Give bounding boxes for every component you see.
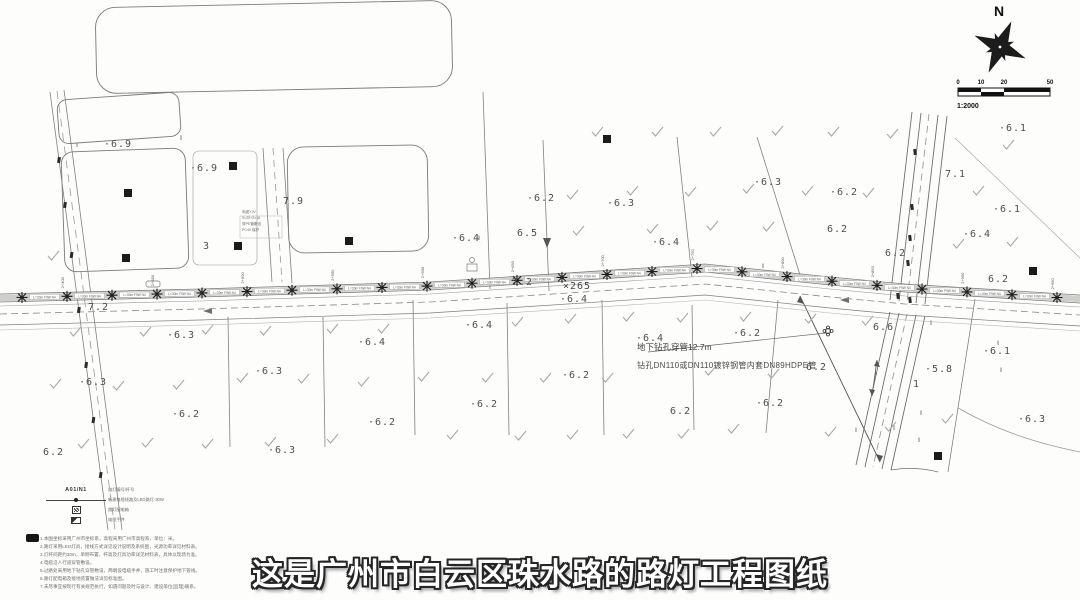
bore-pit-symbol bbox=[823, 326, 833, 336]
ground-mark-icon bbox=[740, 312, 751, 321]
arrowhead bbox=[876, 454, 883, 462]
notes-marker bbox=[26, 534, 39, 542]
parcel-block bbox=[287, 145, 429, 253]
scale-ticks: 0102050 bbox=[956, 80, 1054, 86]
ground-mark-icon bbox=[707, 221, 718, 230]
elevation-label: ·6.2 bbox=[830, 187, 858, 198]
boundary-lines bbox=[50, 90, 1080, 530]
ground-mark-icon bbox=[540, 373, 551, 382]
ground-mark-icon bbox=[48, 251, 59, 260]
elevation-label: ·6.2 bbox=[368, 417, 396, 428]
street-lamp-icon bbox=[152, 289, 163, 300]
ground-mark-icon bbox=[802, 186, 813, 195]
ground-mark-icon bbox=[623, 312, 634, 321]
ground-mark-icon bbox=[515, 431, 526, 440]
ground-mark-icon bbox=[710, 127, 721, 136]
legend: A01/N1路灯编号/杆号新建电缆线路及LED路灯·30W路灯配电箱电缆手井 bbox=[44, 485, 244, 525]
ground-mark-icon bbox=[685, 187, 696, 196]
parcel-block bbox=[57, 92, 182, 144]
legend-row: 路灯配电箱 bbox=[44, 505, 244, 515]
elevation-label: ·6.9 bbox=[104, 139, 132, 150]
scale-ratio: 1:2000 bbox=[957, 103, 979, 110]
elevation-label: 6.5 bbox=[517, 228, 538, 239]
elevation-label: ·6.3 bbox=[607, 198, 635, 209]
ground-mark-icon bbox=[862, 316, 873, 325]
legend-row: 新建电缆线路及LED路灯·30W bbox=[44, 495, 244, 505]
elevation-label: ·6.1 bbox=[999, 123, 1027, 134]
pole-mark bbox=[63, 202, 67, 208]
arrowhead bbox=[797, 296, 804, 304]
lamp-label-text: L=30m F9W N4 bbox=[33, 295, 56, 299]
elevation-label: 6.2 bbox=[670, 406, 691, 417]
lamp-label-text: L=30m F9W N4 bbox=[213, 291, 236, 295]
double-tick: ‖ bbox=[478, 236, 480, 242]
ground-mark-icon bbox=[418, 372, 429, 381]
elevation-label: 6.2 bbox=[885, 248, 906, 259]
lamp-label-text: L=30m F9W N4 bbox=[78, 294, 101, 298]
station-label: 2+850 bbox=[870, 265, 875, 277]
station-marker-label: ×265 bbox=[563, 281, 591, 292]
lamp-code-text: A01/N1 bbox=[65, 487, 87, 493]
elevation-label: 7.2 bbox=[88, 302, 109, 313]
boundary-line bbox=[955, 138, 1080, 258]
boundary-line bbox=[602, 300, 604, 435]
elevation-label: ·6.4 bbox=[452, 233, 480, 244]
ground-mark-icon bbox=[763, 222, 774, 231]
lamp-label-text: L=30m F9W N4 bbox=[933, 289, 956, 293]
building-square bbox=[345, 237, 353, 245]
station-label: 2+650 bbox=[510, 260, 515, 272]
pole-mark bbox=[57, 157, 61, 163]
pole-mark bbox=[92, 417, 96, 423]
street-lamp-icon bbox=[827, 276, 838, 287]
arrowhead bbox=[869, 389, 875, 396]
station-label: 2+800 bbox=[780, 257, 785, 269]
street-lamp-icon bbox=[467, 278, 478, 289]
elevation-label: ·6.2 bbox=[172, 409, 200, 420]
main-road bbox=[0, 264, 1080, 331]
pole-mark bbox=[70, 252, 74, 258]
ground-mark-icon bbox=[627, 186, 638, 195]
elevation-label: 6.2 bbox=[43, 447, 64, 458]
ground-mark-icon bbox=[768, 369, 779, 378]
pole-mark bbox=[908, 235, 912, 241]
legend-label: 路灯配电箱 bbox=[108, 507, 129, 513]
elevation-label: ·6.3 bbox=[255, 366, 283, 377]
elevation-label: ·6.2 bbox=[470, 399, 498, 410]
road-line bbox=[0, 295, 1080, 326]
north-label: N bbox=[994, 3, 1004, 19]
cable-route-line bbox=[800, 296, 880, 462]
elevation-label: ·6.3 bbox=[268, 445, 296, 456]
ground-mark-icon bbox=[863, 188, 874, 197]
pole-mark bbox=[908, 297, 912, 303]
parcel-block bbox=[95, 0, 453, 93]
pole-mark bbox=[910, 204, 914, 210]
station-label: 2+600 bbox=[420, 266, 425, 278]
scale-tick-label: 50 bbox=[1047, 80, 1054, 86]
street-lamp-icon bbox=[1052, 292, 1063, 303]
lamp-label-text: L=30m F9W N4 bbox=[168, 292, 191, 296]
double-tick: ‖ bbox=[918, 438, 920, 444]
elevation-label: ·6.4 bbox=[358, 337, 386, 348]
street-lamp-icon bbox=[377, 282, 388, 293]
cable-line-icon bbox=[46, 500, 106, 501]
station-label: 2+950 bbox=[1050, 278, 1055, 290]
street-lamp-icon bbox=[107, 290, 118, 301]
lamp-label-text: L=30m F9W N4 bbox=[618, 272, 641, 276]
boundary-line bbox=[543, 140, 549, 291]
double-tick: ‖ bbox=[855, 428, 857, 434]
ground-mark-icon bbox=[327, 324, 338, 333]
double-tick: ‖ bbox=[180, 136, 182, 142]
lamp-label-text: L=30m F9W N4 bbox=[393, 285, 416, 289]
mid-road-centerline bbox=[273, 148, 282, 282]
lamp-label-text: L=30m F9W N4 bbox=[573, 275, 596, 279]
scale-bar: 0102050 1:2000 bbox=[956, 80, 1054, 110]
legend-label: 路灯编号/杆号 bbox=[108, 487, 134, 493]
building-square bbox=[234, 242, 242, 250]
elevation-label: ·6.2 bbox=[733, 328, 761, 339]
elevation-label: ·6.4 bbox=[652, 237, 680, 248]
ground-mark-icon bbox=[743, 184, 754, 193]
ground-mark-icon bbox=[647, 224, 658, 233]
note-line: 1.本图坐标采用广州市坐标系，高程采用广州市高程系，单位：米。 bbox=[40, 535, 320, 543]
double-tick: ‖ bbox=[1000, 368, 1002, 374]
elevation-label: 3 bbox=[203, 241, 210, 252]
ground-mark-icon bbox=[512, 317, 523, 326]
ground-mark-icon bbox=[567, 430, 578, 439]
cable-crossing bbox=[648, 296, 883, 462]
legend-row: 电缆手井 bbox=[44, 515, 244, 525]
ground-mark-icon bbox=[1003, 140, 1014, 149]
elevation-label: 6.2 bbox=[827, 224, 848, 235]
double-tick: ‖ bbox=[930, 321, 932, 327]
elevation-label: ·6.3 bbox=[79, 377, 107, 388]
station-label: 2+750 bbox=[690, 249, 695, 261]
ground-mark-icon bbox=[140, 327, 151, 336]
ground-mark-icon bbox=[772, 126, 783, 135]
building-square bbox=[1029, 267, 1037, 275]
boundary-line bbox=[228, 317, 230, 447]
lamp-label-text: L=30m F9W N4 bbox=[123, 293, 146, 297]
ground-mark-icon bbox=[953, 239, 964, 248]
ground-mark-icon bbox=[567, 190, 578, 199]
mid-road-edge bbox=[263, 148, 272, 282]
elevation-label: ·6.2 bbox=[527, 193, 555, 204]
cable-well-icon bbox=[71, 517, 81, 524]
elevation-label: 7.9 bbox=[283, 196, 304, 207]
ground-mark-icon bbox=[78, 439, 89, 448]
arrowhead bbox=[543, 238, 551, 248]
ground-mark-icon bbox=[828, 127, 839, 136]
street-lamp-icon bbox=[1007, 289, 1018, 300]
elevation-label: ·6.4 bbox=[560, 294, 588, 305]
elevation-label: ·5.8 bbox=[925, 364, 953, 375]
ground-mark-icon bbox=[260, 326, 271, 335]
pole-mark bbox=[99, 472, 103, 478]
building-square bbox=[934, 452, 942, 460]
elevation-label: ·6.2 bbox=[562, 370, 590, 381]
ground-mark-icon bbox=[602, 373, 613, 382]
building-square bbox=[603, 135, 611, 143]
cable-spec-note: 电缆YJV3×25+2×16穿PE管敷设PC40 保护 bbox=[242, 209, 262, 232]
ground-mark-icon bbox=[942, 414, 953, 423]
elevation-label: 7.2 bbox=[512, 277, 533, 288]
street-lamp-icon bbox=[422, 281, 433, 292]
pole-mark bbox=[896, 293, 900, 299]
street-lamp-icon bbox=[962, 286, 973, 297]
street-lamp-icon bbox=[692, 263, 703, 274]
street-lamp-icon bbox=[62, 291, 73, 302]
ground-mark-icon bbox=[973, 186, 984, 195]
legend-code: A01/N1 bbox=[44, 487, 108, 493]
boundary-line bbox=[413, 300, 415, 435]
boundary-line bbox=[323, 317, 325, 447]
street-lamp-icon bbox=[332, 283, 343, 294]
ground-mark-icon bbox=[50, 379, 61, 388]
ground-mark-icon bbox=[202, 439, 213, 448]
lamp-label-text: L=30m F9W N4 bbox=[303, 288, 326, 292]
elevation-label: ·6.3 bbox=[1018, 414, 1046, 425]
ground-mark-icon bbox=[1007, 237, 1018, 246]
cable-note-line: PC40 保护 bbox=[242, 227, 260, 232]
ground-mark-icon bbox=[728, 424, 739, 433]
survey-symbol bbox=[467, 264, 477, 271]
street-lamp-icon bbox=[17, 292, 28, 303]
elevation-label: 1 bbox=[913, 379, 920, 390]
legend-label: 新建电缆线路及LED路灯·30W bbox=[108, 497, 164, 503]
ground-mark-icon bbox=[173, 380, 184, 389]
distribution-box-symbol bbox=[44, 506, 108, 514]
ground-mark-icon bbox=[327, 434, 338, 443]
elevation-label: 6.2 bbox=[988, 274, 1009, 285]
double-tick: ‖ bbox=[893, 426, 895, 432]
pole-mark bbox=[84, 362, 88, 368]
cable-note-line: 穿PE管敷设 bbox=[242, 221, 262, 226]
double-tick: ‖ bbox=[920, 411, 922, 417]
ground-mark-icon bbox=[678, 429, 689, 438]
lamp-label-text: L=30m F9W N4 bbox=[258, 289, 281, 293]
double-tick: ‖ bbox=[762, 264, 764, 270]
lamp-label-text: L=30m F9W N4 bbox=[753, 273, 776, 277]
drawing-canvas: L=30m F9W N4L=30m F9W N4L=30m F9W N4L=30… bbox=[0, 0, 1080, 600]
cable-well-symbol bbox=[44, 517, 108, 524]
ground-mark-icon bbox=[565, 314, 576, 323]
elevation-label: ·6.1 bbox=[993, 204, 1021, 215]
ground-mark-icon bbox=[573, 226, 584, 235]
cable-symbol bbox=[44, 500, 108, 501]
bore-annotation-line1: 地下钻孔穿管12.7m bbox=[637, 342, 712, 352]
ground-mark-icon bbox=[623, 429, 634, 438]
lamp-label-text: L=30m F9W N4 bbox=[663, 269, 686, 273]
cable-note-line: 电缆YJV bbox=[242, 209, 256, 214]
elevation-label: ·6.1 bbox=[983, 346, 1011, 357]
caption-subtitle: 这是广州市白云区珠水路的路灯工程图纸 bbox=[0, 549, 1080, 594]
distribution-box-icon bbox=[72, 506, 81, 514]
street-lamp-icon bbox=[737, 266, 748, 277]
station-label: 2+500 bbox=[240, 272, 245, 284]
elevation-label: ·6.4 bbox=[963, 229, 991, 240]
ground-mark-icon bbox=[202, 325, 213, 334]
street-lamp-icon bbox=[197, 287, 208, 298]
north-compass: N bbox=[963, 3, 1037, 84]
station-label: 2+900 bbox=[960, 272, 965, 284]
building-square bbox=[122, 254, 130, 262]
double-tick: ‖ bbox=[997, 341, 999, 347]
ground-mark-icon bbox=[358, 377, 369, 386]
ground-mark-icon bbox=[825, 427, 836, 436]
elevation-label: ·6.9 bbox=[190, 163, 218, 174]
ground-mark-icon bbox=[887, 129, 898, 138]
lamp-label-text: L=30m F9W N4 bbox=[888, 286, 911, 290]
elevation-label: ·6.3 bbox=[754, 177, 782, 188]
ground-mark-icon bbox=[482, 373, 493, 382]
lamp-label-text: L=30m F9W N4 bbox=[483, 280, 506, 284]
ground-mark-icon bbox=[677, 313, 688, 322]
building-square bbox=[124, 189, 132, 197]
compass-star-icon bbox=[963, 10, 1037, 84]
ground-mark-icon bbox=[652, 127, 663, 136]
scale-tick-label: 20 bbox=[1001, 80, 1008, 86]
lamp-label-text: L=30m F9W N4 bbox=[798, 277, 821, 281]
survey-symbol bbox=[470, 258, 475, 263]
legend-row: A01/N1路灯编号/杆号 bbox=[44, 485, 244, 495]
elevation-label: 6.6 bbox=[873, 322, 894, 333]
elevation-label: 7.1 bbox=[945, 169, 966, 180]
elevation-label: ·6.3 bbox=[167, 330, 195, 341]
elevation-label: ·6.4 bbox=[465, 320, 493, 331]
lamp-label-text: L=30m F9W N4 bbox=[708, 268, 731, 272]
cable-note-line: 3×25+2×16 bbox=[242, 216, 260, 220]
street-lamp-icon bbox=[287, 285, 298, 296]
ground-mark-icon bbox=[378, 324, 389, 333]
bore-annotation-line2: 钻孔DN110或DN110镀锌钢管内套DN89HDPE管 bbox=[637, 360, 817, 370]
ground-mark-icon bbox=[237, 373, 248, 382]
ground-mark-icon bbox=[113, 381, 124, 390]
street-lamp-icon bbox=[917, 284, 928, 295]
ground-mark-icon bbox=[142, 438, 153, 447]
street-lamp-icon bbox=[242, 286, 253, 297]
street-lamp-icon bbox=[602, 269, 613, 280]
scale-tick-label: 10 bbox=[978, 80, 985, 86]
ground-mark-icon bbox=[447, 430, 458, 439]
building-square bbox=[229, 162, 237, 170]
street-lamp-icon bbox=[872, 280, 883, 291]
street-lamp-icon bbox=[647, 266, 658, 277]
lamp-label-text: L=30m F9W N4 bbox=[348, 287, 371, 291]
lamp-label-text: L=30m F9W N4 bbox=[1023, 295, 1046, 299]
station-label: 2+400 bbox=[60, 276, 65, 288]
boundary-line bbox=[757, 137, 800, 275]
station-label: 2+450 bbox=[150, 274, 155, 286]
double-tick: ‖ bbox=[76, 143, 78, 149]
ground-mark-icon bbox=[592, 127, 603, 136]
boundary-line bbox=[507, 303, 509, 435]
pole-mark bbox=[906, 260, 910, 266]
lamp-label-text: L=30m F9W N4 bbox=[978, 292, 1001, 296]
street-lamp-icon bbox=[782, 271, 793, 282]
lamp-label-text: L=30m F9W N4 bbox=[843, 282, 866, 286]
station-label: 2+550 bbox=[330, 269, 335, 281]
legend-label: 电缆手井 bbox=[108, 517, 125, 523]
lamp-label-text: L=30m F9W N4 bbox=[438, 283, 461, 287]
ground-mark-icon bbox=[298, 374, 309, 383]
boundary-line bbox=[483, 92, 490, 289]
scale-tick-label: 0 bbox=[956, 80, 960, 86]
station-label: 2+700 bbox=[600, 254, 605, 266]
double-tick: ‖ bbox=[875, 371, 877, 377]
elevation-label: ·6.2 bbox=[756, 398, 784, 409]
